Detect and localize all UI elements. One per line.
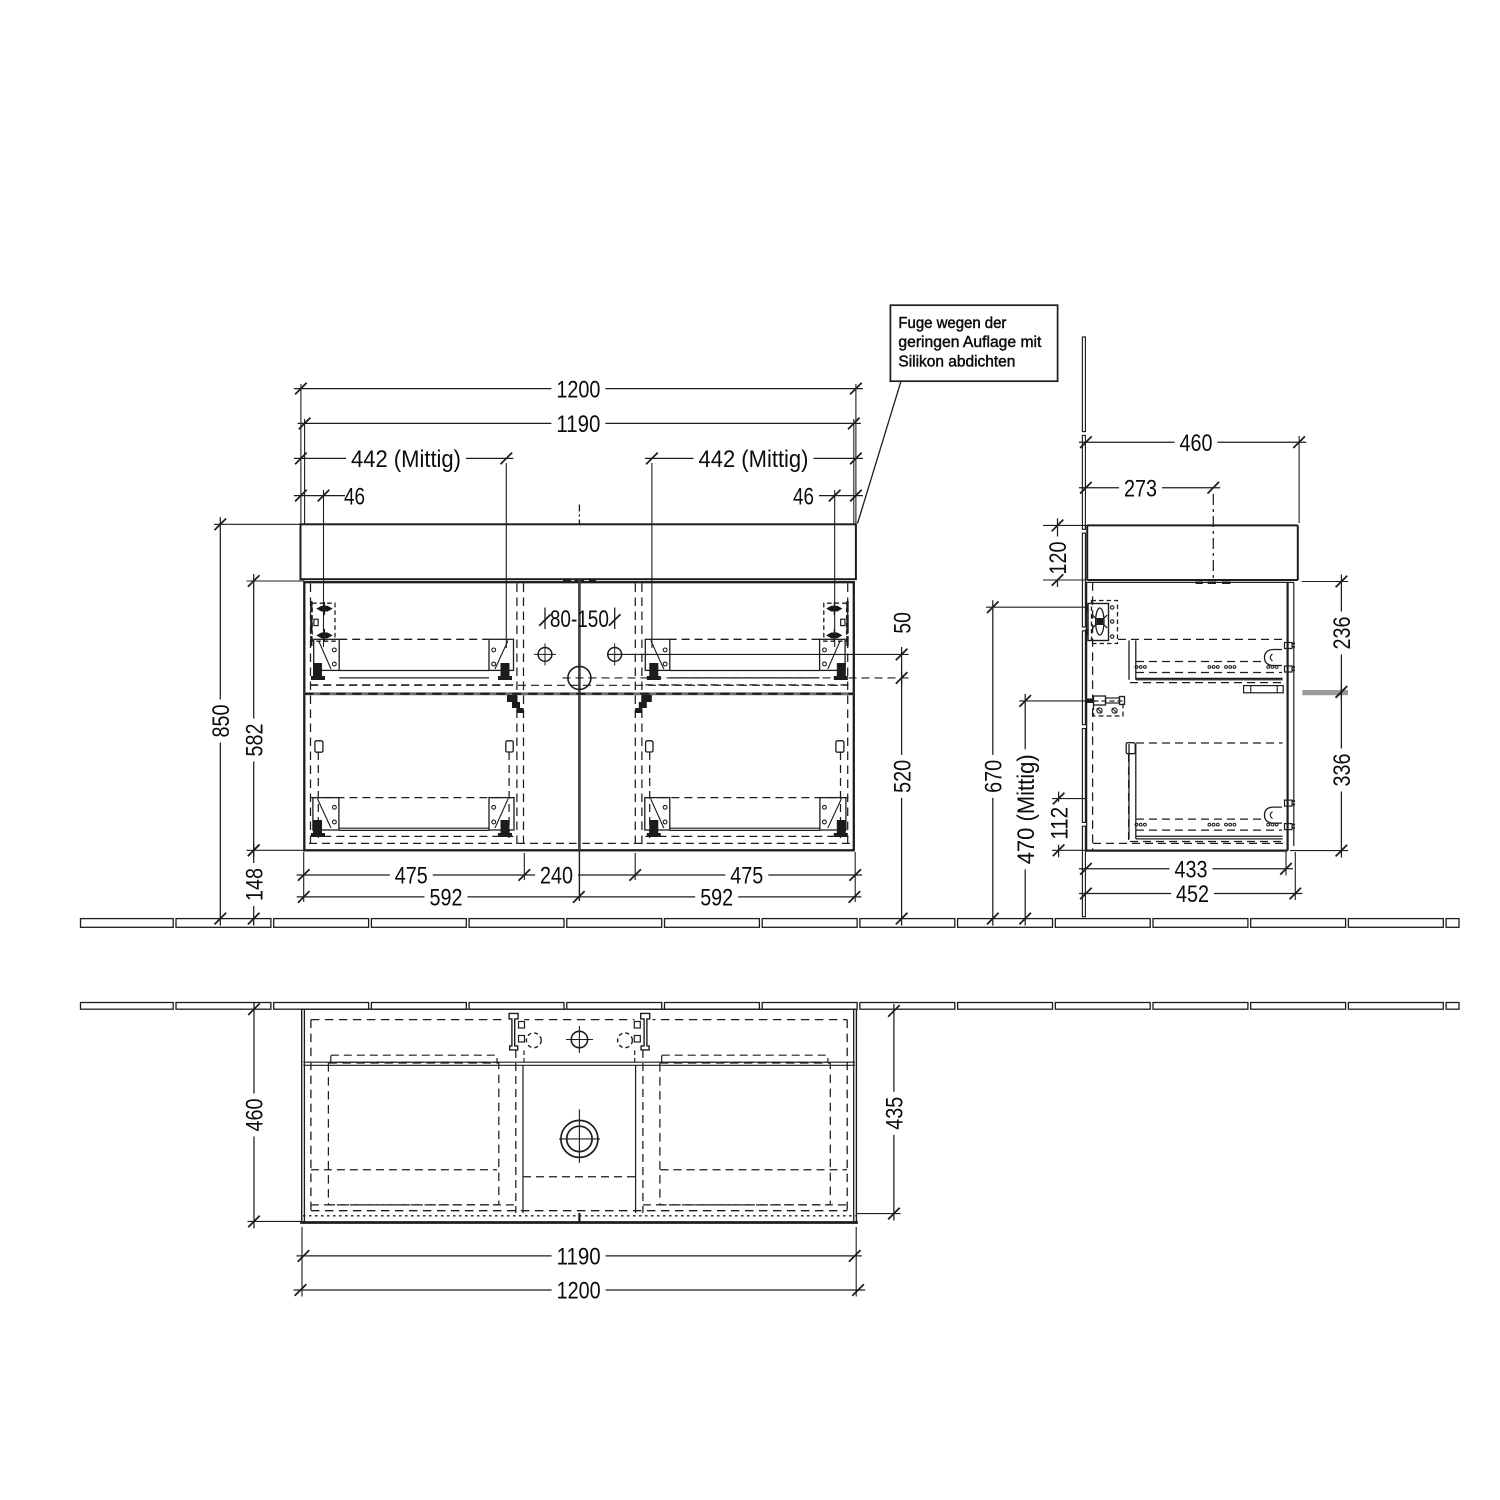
svg-text:435: 435 [882,1097,909,1130]
svg-text:452: 452 [1176,881,1209,908]
svg-text:273: 273 [1124,475,1157,502]
svg-text:475: 475 [395,863,428,890]
svg-text:Fuge wegen der: Fuge wegen der [898,315,1006,332]
svg-text:236: 236 [1329,617,1356,650]
svg-text:112: 112 [1046,807,1073,840]
svg-text:460: 460 [1180,430,1213,457]
svg-text:520: 520 [889,760,916,793]
svg-text:670: 670 [981,760,1008,793]
svg-text:46: 46 [793,483,814,510]
svg-text:442 (Mittig): 442 (Mittig) [351,446,461,473]
svg-text:582: 582 [241,724,268,757]
svg-text:433: 433 [1175,857,1208,884]
svg-text:120: 120 [1045,542,1072,575]
svg-text:470 (Mittig): 470 (Mittig) [1013,754,1040,864]
svg-text:442 (Mittig): 442 (Mittig) [699,446,809,473]
svg-text:geringen Auflage mit: geringen Auflage mit [898,334,1042,351]
svg-text:592: 592 [700,885,733,912]
svg-text:240: 240 [540,863,573,890]
svg-text:80-150: 80-150 [550,606,609,633]
svg-text:592: 592 [430,885,463,912]
svg-text:460: 460 [242,1099,269,1132]
svg-text:Silikon abdichten: Silikon abdichten [898,353,1015,370]
svg-text:1190: 1190 [557,1244,601,1271]
svg-text:475: 475 [730,863,763,890]
svg-text:148: 148 [241,868,268,901]
svg-text:850: 850 [208,705,235,738]
svg-text:1200: 1200 [557,1278,601,1305]
svg-text:336: 336 [1329,754,1356,787]
svg-text:50: 50 [889,612,916,634]
svg-text:1190: 1190 [556,411,600,438]
svg-text:46: 46 [344,483,365,510]
svg-text:1200: 1200 [556,376,600,403]
